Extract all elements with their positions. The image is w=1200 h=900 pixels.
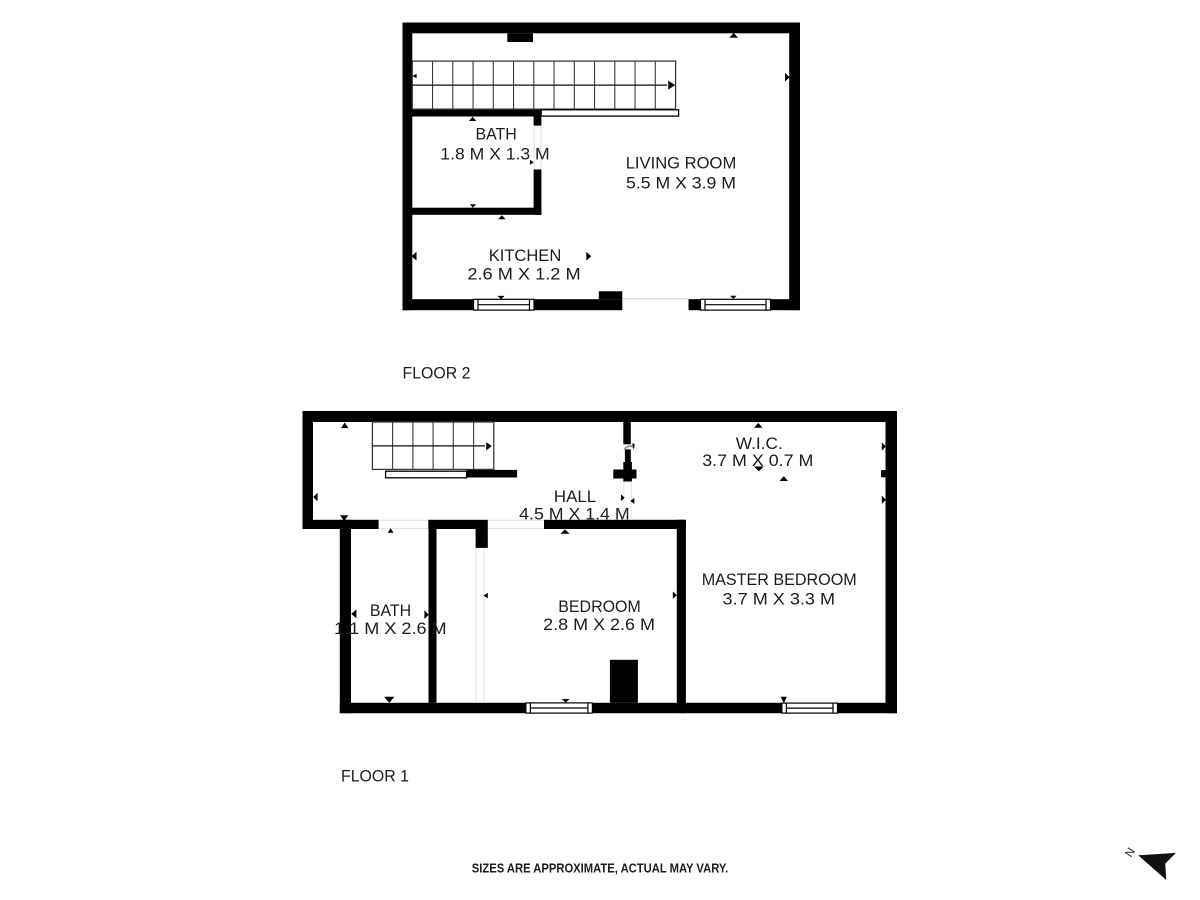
svg-text:BATH: BATH (476, 125, 517, 144)
svg-text:1.1 M X 2.6 M: 1.1 M X 2.6 M (334, 619, 446, 638)
svg-text:FLOOR 1: FLOOR 1 (341, 767, 409, 786)
svg-text:FLOOR 2: FLOOR 2 (403, 364, 471, 383)
svg-text:2.8 M X 2.6 M: 2.8 M X 2.6 M (543, 615, 655, 634)
svg-text:W.I.C.: W.I.C. (736, 434, 783, 453)
svg-text:LIVING ROOM: LIVING ROOM (626, 154, 737, 173)
svg-text:4.5 M X 1.4 M: 4.5 M X 1.4 M (519, 504, 630, 523)
svg-text:SIZES ARE APPROXIMATE, ACTUAL: SIZES ARE APPROXIMATE, ACTUAL MAY VARY. (472, 860, 729, 875)
svg-text:HALL: HALL (554, 487, 596, 506)
svg-text:3.7 M X 0.7 M: 3.7 M X 0.7 M (702, 451, 813, 470)
svg-text:MASTER BEDROOM: MASTER BEDROOM (702, 570, 857, 589)
svg-text:1.8 M X 1.3 M: 1.8 M X 1.3 M (440, 145, 549, 164)
svg-text:5.5 M X 3.9 M: 5.5 M X 3.9 M (626, 174, 736, 193)
svg-text:3.7 M X 3.3 M: 3.7 M X 3.3 M (723, 590, 836, 609)
svg-text:KITCHEN: KITCHEN (489, 246, 562, 265)
svg-text:BATH: BATH (370, 601, 411, 620)
svg-text:BEDROOM: BEDROOM (558, 597, 641, 616)
svg-text:2.6 M X 1.2 M: 2.6 M X 1.2 M (467, 265, 580, 284)
